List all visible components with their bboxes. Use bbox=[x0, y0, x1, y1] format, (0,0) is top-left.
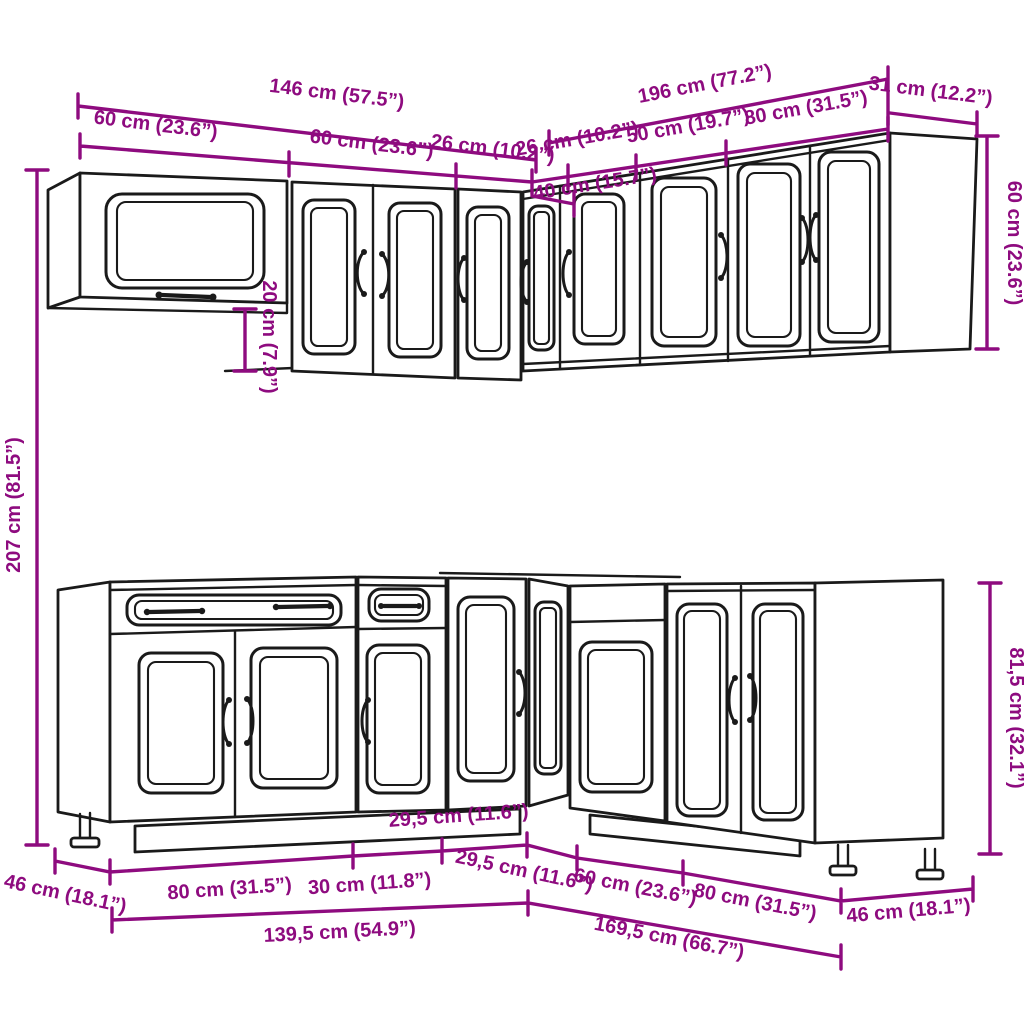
dim-label-wall-height-60: 60 cm (23.6”) bbox=[1003, 181, 1024, 306]
wall-cabinet-26 bbox=[458, 189, 521, 380]
handle-screw bbox=[524, 259, 530, 265]
handle-screw bbox=[516, 669, 522, 675]
handle-screw bbox=[244, 740, 250, 746]
dim-label-wall-seg-60: 60 cm (23.6”) bbox=[309, 126, 435, 163]
handle-screw bbox=[747, 673, 753, 679]
leg bbox=[925, 849, 935, 872]
handle-screw bbox=[361, 249, 367, 255]
base-cabinet-80-left bbox=[58, 577, 356, 822]
back-top-edge bbox=[440, 573, 680, 577]
leg bbox=[838, 845, 848, 868]
handle-screw bbox=[226, 697, 232, 703]
dim-line-207 bbox=[26, 170, 48, 845]
diagram-canvas: 146 cm (57.5”) 196 cm (77.2”) 31 cm (12.… bbox=[0, 0, 1024, 1024]
handle-screw bbox=[199, 608, 205, 614]
base-cabinet-corner bbox=[448, 578, 568, 810]
cabinet-side-panel bbox=[815, 580, 943, 843]
handle-screw bbox=[156, 292, 163, 299]
handle-screw bbox=[813, 212, 819, 218]
handle-screw bbox=[813, 257, 819, 263]
kitchen-dimension-diagram: 146 cm (57.5”) 196 cm (77.2”) 31 cm (12.… bbox=[0, 0, 1024, 1024]
handle-screw bbox=[732, 675, 738, 681]
base-cabinets bbox=[58, 573, 943, 879]
handle-screw bbox=[226, 741, 232, 747]
dim-label-base-total-right-1695: 169,5 cm (66.7”) bbox=[592, 913, 746, 964]
dim-line-815 bbox=[979, 583, 1001, 854]
handle-screw bbox=[327, 603, 333, 609]
handle-screw bbox=[273, 604, 279, 610]
handle bbox=[162, 295, 210, 297]
handle-screw bbox=[566, 249, 572, 255]
dim-label-base-seg-80-left: 80 cm (31.5”) bbox=[167, 874, 293, 905]
cabinet-side bbox=[48, 173, 80, 308]
drawer-separator bbox=[358, 628, 446, 629]
handle-screw bbox=[718, 232, 724, 238]
dim-label-wall-height-diff-20: 20 cm (7.9”) bbox=[258, 280, 280, 393]
wall-cabinet-double-60 bbox=[292, 182, 455, 378]
handle-screw bbox=[799, 215, 805, 221]
handle-screw bbox=[365, 739, 371, 745]
handle-screw bbox=[461, 297, 467, 303]
dim-label-base-seg-30: 30 cm (11.8”) bbox=[307, 869, 432, 900]
drawer-handle bbox=[279, 606, 327, 607]
dim-label-base-total-left-1395: 139,5 cm (54.9”) bbox=[263, 917, 416, 947]
cabinet-front bbox=[358, 577, 446, 812]
handle-screw bbox=[732, 719, 738, 725]
handle-screw bbox=[378, 603, 384, 609]
handle-screw bbox=[244, 696, 250, 702]
dim-line-20 bbox=[234, 309, 256, 371]
wall-cabinets bbox=[48, 133, 977, 380]
drawer-handle bbox=[150, 611, 199, 612]
handle-screw bbox=[379, 293, 385, 299]
base-cabinet-30 bbox=[358, 577, 446, 812]
dim-label-wall-left-cab: 60 cm (23.6”) bbox=[93, 107, 219, 144]
dim-label-wall-seg-50: 50 cm (19.7”) bbox=[625, 104, 751, 147]
dim-line-31 bbox=[890, 112, 977, 136]
leg-foot bbox=[71, 838, 99, 847]
dim-label-base-height-815: 81,5 cm (32.1”) bbox=[1005, 647, 1024, 788]
handle-screw bbox=[461, 255, 467, 261]
leg-foot bbox=[830, 866, 856, 875]
dim-line-60-height bbox=[976, 136, 998, 349]
handle-screw bbox=[379, 251, 385, 257]
handle-screw bbox=[747, 717, 753, 723]
handle-screw bbox=[144, 609, 150, 615]
dim-label-wall-seg-26-right: 26 cm (10.2”) bbox=[514, 117, 640, 160]
base-cabinet-60-oven bbox=[570, 584, 665, 821]
handle-screw bbox=[524, 299, 530, 305]
handle-screw bbox=[361, 291, 367, 297]
dim-label-top-total-left: 146 cm (57.5”) bbox=[268, 75, 405, 113]
dim-label-base-seg-295-b: 29,5 cm (11.6”) bbox=[453, 846, 595, 897]
handle-screw bbox=[210, 294, 217, 301]
wall-cabinet-right-run bbox=[521, 133, 977, 371]
handle-screw bbox=[416, 603, 422, 609]
handle-screw bbox=[799, 259, 805, 265]
handle-screw bbox=[718, 275, 724, 281]
wall-cabinet-glass-60 bbox=[48, 173, 293, 371]
cabinet-side bbox=[58, 582, 110, 822]
leg-foot bbox=[917, 870, 943, 879]
top-edge-line bbox=[358, 585, 446, 586]
dim-label-total-height-207: 207 cm (81.5”) bbox=[3, 437, 25, 573]
handle-screw bbox=[566, 292, 572, 298]
handle-screw bbox=[365, 697, 371, 703]
cabinet-side-panel bbox=[890, 133, 977, 352]
handle-screw bbox=[516, 711, 522, 717]
base-cabinet-80-right bbox=[667, 580, 943, 843]
dim-label-top-total-right: 196 cm (77.2”) bbox=[636, 60, 773, 107]
